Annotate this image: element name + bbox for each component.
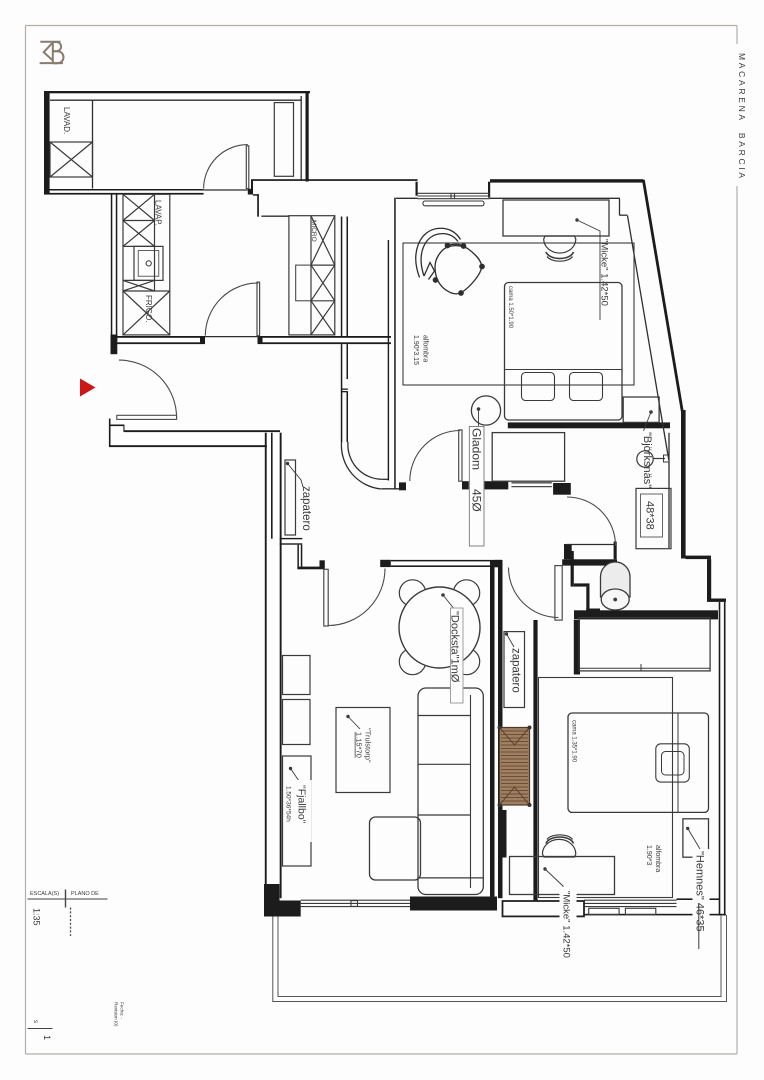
svg-text:Gladom: Gladom [470,428,484,470]
svg-text:1: 1 [42,1035,52,1040]
svg-text:"Micke" 1.42*50: "Micke" 1.42*50 [599,239,610,306]
svg-text:45Ø: 45Ø [470,489,484,512]
svg-text:1.50*36*54h: 1.50*36*54h [285,786,292,822]
svg-text:alfombra: alfombra [654,845,661,872]
svg-text:Fecha: -: Fecha: - [120,1002,125,1019]
svg-text:1.90*3: 1.90*3 [645,845,652,865]
svg-text:alfombra: alfombra [422,335,429,362]
svg-text:1.90*3.15: 1.90*3.15 [412,335,419,365]
svg-text:zapatero: zapatero [300,486,312,531]
svg-text:"Hemnes" 46*35: "Hemnes" 46*35 [694,851,706,932]
svg-text:LAVAD.: LAVAD. [62,107,71,134]
svg-text:zapatero: zapatero [510,648,522,693]
svg-text:48*38: 48*38 [644,501,656,530]
svg-text:"Micke" 1.42*50: "Micke" 1.42*50 [561,891,572,958]
svg-text:s: s [32,1020,38,1023]
svg-text:MICRO: MICRO [310,220,317,242]
svg-text:1:35: 1:35 [32,908,42,926]
svg-text:ESCALA(S): ESCALA(S) [30,891,59,897]
svg-text:LAVAP.: LAVAP. [154,200,163,226]
svg-text:1.15*70: 1.15*70 [355,732,364,758]
svg-text:MACARENA BARCIA: MACARENA BARCIA [737,53,747,181]
svg-text:"Fjallbo": "Fjallbo" [296,785,308,824]
svg-text:cama 1.35*1.90: cama 1.35*1.90 [571,720,577,763]
svg-text:"Björksnäs": "Björksnäs" [641,432,653,488]
svg-text:PLANO DE: PLANO DE [71,891,99,897]
svg-text:cama 1.50*1.90: cama 1.50*1.90 [507,286,513,329]
svg-text:FRIGO.: FRIGO. [144,295,153,323]
svg-text:"Trulstorp": "Trulstorp" [364,728,373,763]
svg-text:Revision (0): Revision (0) [114,1002,119,1027]
